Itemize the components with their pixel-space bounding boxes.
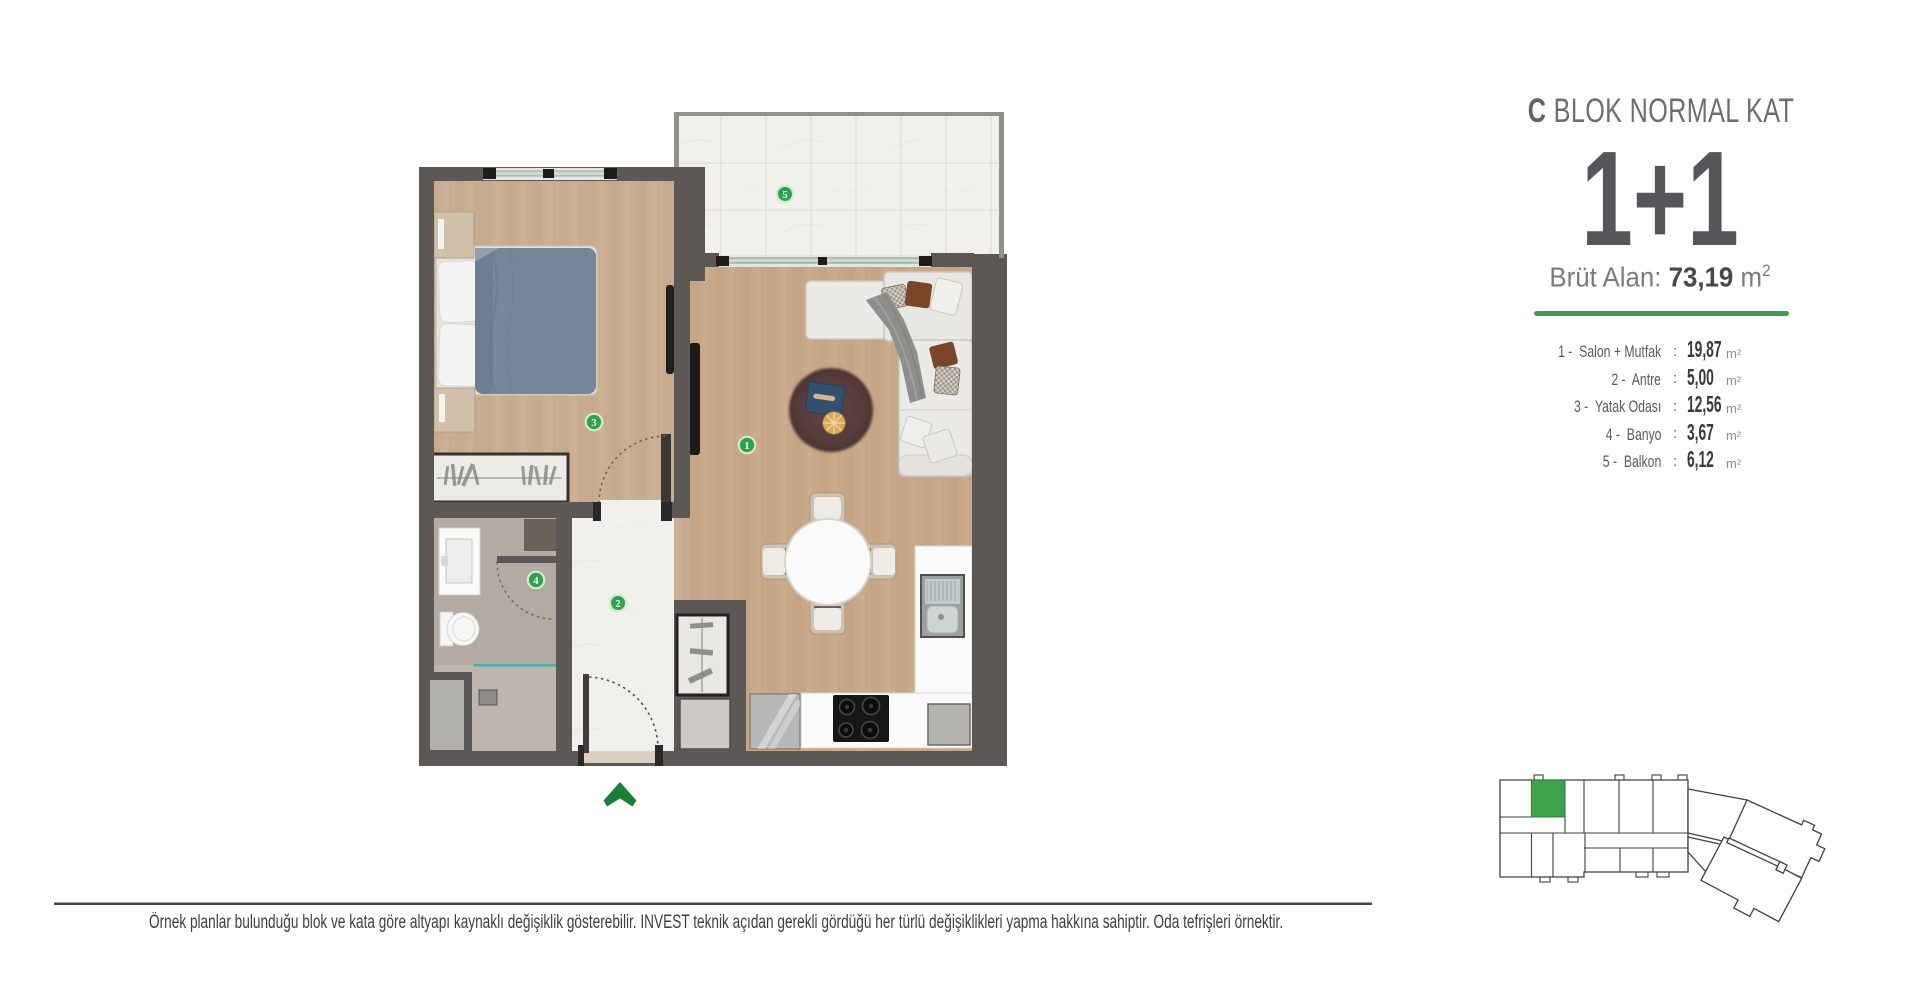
svg-text:5: 5 bbox=[782, 190, 787, 201]
svg-text:3: 3 bbox=[591, 418, 596, 429]
svg-text:1: 1 bbox=[744, 441, 749, 452]
svg-text:2: 2 bbox=[615, 599, 620, 610]
svg-text:4: 4 bbox=[533, 576, 539, 587]
